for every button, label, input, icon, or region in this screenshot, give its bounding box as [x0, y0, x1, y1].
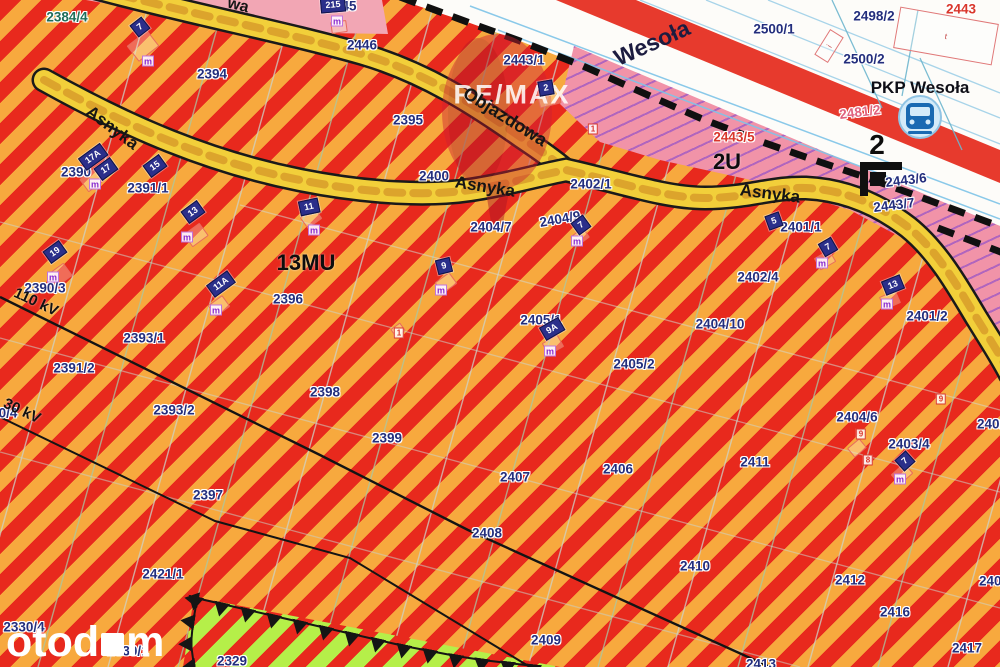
parcel-label: 2393/1 — [123, 331, 164, 346]
pkp-station-icon — [899, 96, 941, 138]
building-function-badge: m — [435, 285, 447, 296]
parcel-label: 2446 — [347, 38, 377, 53]
parcel-label: 2500/2 — [843, 52, 884, 67]
otodom-logo-square-icon — [101, 633, 124, 656]
parcel-label: 2407 — [500, 470, 530, 485]
parcel-label: 2416 — [880, 605, 910, 620]
building-function-badge: m — [308, 225, 320, 236]
parcel-label: 2413 — [746, 657, 776, 667]
parcel-label: 2410 — [680, 559, 710, 574]
parcel-label: 2402 — [977, 417, 1000, 432]
red-address-plate: 1 — [394, 328, 404, 339]
red-address-plate: 1 — [588, 124, 598, 135]
power-lines — [0, 297, 770, 667]
parcel-label: 2443/5 — [713, 130, 754, 145]
parcel-label: 2403 — [979, 574, 1000, 589]
parcel-label: 2498/2 — [853, 9, 894, 24]
parcel-label: 2411 — [740, 455, 769, 470]
parcel-label: 2443 — [946, 2, 976, 17]
red-address-plate: 9 — [856, 429, 866, 440]
otodom-logo-text-right: m — [126, 618, 164, 666]
parcel-label: 2395 — [393, 113, 423, 128]
otodom-logo: otodm — [6, 618, 164, 667]
zone-label: 2U — [713, 149, 741, 175]
building-function-badge: m — [181, 232, 193, 243]
parcel-label: 2405/2 — [613, 357, 654, 372]
parcel-label: 2421/1 — [142, 567, 183, 582]
parcel-label: 2393/2 — [153, 403, 194, 418]
parcel-label: 2402/1 — [570, 177, 611, 192]
parcel-label: 2409 — [531, 633, 561, 648]
address-plate: 2 — [537, 79, 554, 96]
otodom-logo-text-left: otod — [6, 618, 99, 666]
parcel-label: 2412 — [835, 573, 865, 588]
address-plate: 215 — [320, 0, 346, 14]
parcel-label: 2397 — [193, 488, 223, 503]
building-function-badge: m — [142, 56, 154, 67]
parcel-label: 2400 — [419, 169, 449, 184]
building-function-badge: m — [210, 305, 222, 316]
parcel-label: 2384/4 — [46, 10, 87, 25]
parcel-label: 2443/1 — [503, 53, 544, 68]
parcel-label: 2404/6 — [836, 410, 877, 425]
red-address-plate: 9 — [936, 394, 946, 405]
parcel-label: 2401/1 — [780, 220, 821, 235]
building-function-badge: m — [47, 272, 59, 283]
building-function-badge: m — [881, 299, 893, 310]
building-function-badge: m — [571, 236, 583, 247]
zone-label: 13MU — [277, 250, 336, 276]
parcel-label: 2396 — [273, 292, 303, 307]
parcel-label: 2500/1 — [753, 22, 794, 37]
parcel-label: 2391/1 — [127, 181, 168, 196]
building-function-badge: m — [816, 258, 828, 269]
parcel-label: 2417 — [952, 641, 982, 656]
zone-label: 2 — [869, 129, 885, 161]
parcel-label: 2401/2 — [906, 309, 947, 324]
parcel-label: 2391/2 — [53, 361, 94, 376]
parcel-label: 2329 — [217, 654, 247, 667]
map-canvas[interactable]: 2446 — [0, 0, 1000, 667]
parcel-label: 2394 — [197, 67, 227, 82]
building-function-badge: m — [89, 179, 101, 190]
parcel-label: 2408 — [472, 526, 502, 541]
parcel-label: 2404/10 — [696, 317, 745, 332]
parcel-label: 2406 — [603, 462, 633, 477]
building-function-badge: m — [894, 474, 906, 485]
parcel-label: 2398 — [310, 385, 340, 400]
parcel-label: 2399 — [372, 431, 402, 446]
building-function-badge: m — [544, 346, 556, 357]
parcel-label: 2403/4 — [888, 437, 929, 452]
parcel-label: 2404/7 — [470, 220, 511, 235]
building-function-badge: m — [331, 16, 343, 27]
red-address-plate: 8 — [863, 455, 873, 466]
parcel-label: 2402/4 — [737, 270, 778, 285]
station-label: PKP Wesoła — [871, 78, 970, 98]
